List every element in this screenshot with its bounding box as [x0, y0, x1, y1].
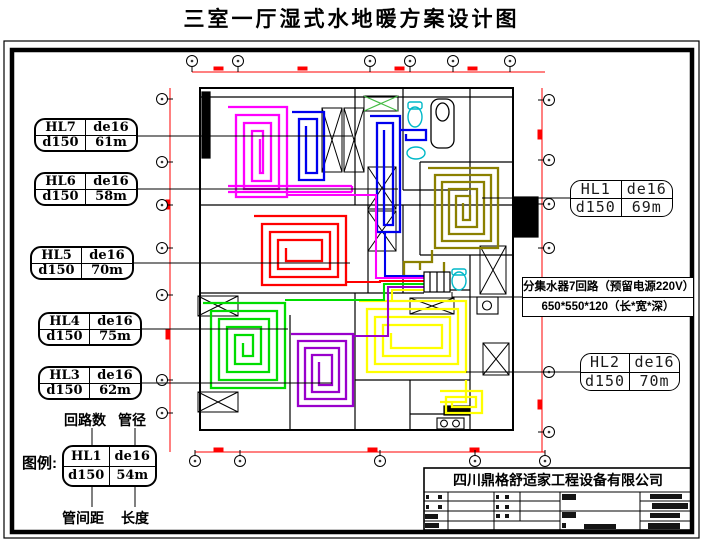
page-title: 三室一厅湿式水地暖方案设计图 [0, 3, 703, 33]
loop-HL2-length: 70m [630, 373, 679, 391]
loop-HL4-spacing: d150 [40, 330, 90, 345]
loop-HL6-spacing: d150 [36, 190, 86, 205]
loop-HL5-length: 70m [82, 264, 132, 279]
legend-label: 图例: [22, 452, 57, 473]
loop-HL1-length: 69m [622, 199, 673, 216]
loop-HL7-pipe: de16 [86, 120, 136, 136]
loop-label-HL7: HL7de16d15061m [34, 118, 138, 152]
heating-coils [203, 107, 498, 413]
axis-bubble [538, 427, 555, 438]
loop-HL3-spacing: d150 [40, 384, 90, 399]
loop-HL7-spacing: d150 [36, 136, 86, 151]
legend-sample-length: 54m [110, 467, 156, 486]
legend-sample-id: HL1 [64, 447, 110, 467]
loop-HL6-id: HL6 [36, 174, 86, 190]
legend-anno-length: 长度 [121, 508, 149, 528]
loop-HL5-id: HL5 [32, 248, 82, 264]
axis-bubble [157, 243, 174, 254]
axis-bubble [538, 243, 555, 254]
loop-HL3-length: 62m [90, 384, 140, 399]
loop-HL2-pipe: de16 [630, 354, 679, 373]
axis-bubble [538, 95, 555, 106]
axis-bubble [157, 290, 174, 301]
legend-sample-pipe: de16 [110, 447, 156, 467]
axis-bubble [157, 157, 174, 168]
axis-bubble [157, 408, 174, 419]
axis-bubble [448, 56, 459, 73]
axis-bubble [157, 94, 174, 105]
legend-anno-pipe-dia: 管径 [118, 410, 146, 430]
vent-hatch-symbol [364, 96, 398, 111]
loop-HL4-pipe: de16 [90, 314, 140, 330]
bathtub-icon [431, 99, 454, 148]
loop-HL1-id: HL1 [571, 181, 622, 199]
loop-label-HL5: HL5de16d15070m [30, 246, 134, 280]
legend-anno-loop-count: 回路数 [64, 410, 106, 430]
closet-x-symbol [368, 167, 396, 209]
loop-HL6-length: 58m [86, 190, 136, 205]
axis-bubble [157, 200, 174, 211]
loop-label-HL4: HL4de16d15075m [38, 312, 142, 346]
manifold-note-line2: 650*550*120（长*宽*深） [523, 298, 693, 317]
trunk-HL3 [353, 287, 424, 336]
loop-HL3-id: HL3 [40, 368, 90, 384]
loop-HL2-id: HL2 [581, 354, 630, 373]
coil-HL3 [291, 334, 353, 406]
loop-HL1-pipe: de16 [622, 181, 673, 199]
manifold-note-line1: 分集水器7回路（预留电源220V） [523, 278, 693, 298]
cad-drawing-page: 三室一厅湿式水地暖方案设计图 HL7de16d15061mHL6de16d150… [0, 0, 703, 541]
loop-label-HL6: HL6de16d15058m [34, 172, 138, 206]
coil-HL1 [428, 168, 498, 248]
legend-sample-box: HL1 de16 d150 54m [62, 445, 157, 487]
axis-bubble [365, 56, 376, 73]
loop-HL7-length: 61m [86, 136, 136, 151]
legend-anno-pipe-pitch: 管间距 [62, 508, 104, 528]
manifold-note: 分集水器7回路（预留电源220V） 650*550*120（长*宽*深） [522, 277, 694, 317]
loop-label-HL1: HL1de16d15069m [570, 180, 673, 217]
axis-bubble [157, 375, 174, 386]
company-name: 四川鼎格舒适家工程设备有限公司 [426, 469, 690, 491]
closet-x-symbol [198, 392, 238, 412]
axis-bubble [187, 56, 198, 73]
axis-bubble [233, 56, 244, 73]
loop-HL1-spacing: d150 [571, 199, 622, 216]
closet-x-symbol [344, 108, 364, 172]
loop-HL7-id: HL7 [36, 120, 86, 136]
loop-HL4-id: HL4 [40, 314, 90, 330]
axis-bubble [405, 56, 416, 73]
loop-HL4-length: 75m [90, 330, 140, 345]
manifold-symbol [424, 272, 450, 292]
closet-x-symbol [198, 296, 238, 316]
legend-sample-spacing: d150 [64, 467, 110, 486]
loop-HL2-spacing: d150 [581, 373, 630, 391]
axis-bubble [505, 56, 516, 73]
loop-label-HL2: HL2de16d15070m [580, 353, 680, 391]
loop-label-HL3: HL3de16d15062m [38, 366, 142, 400]
coil-HL6 [292, 112, 324, 180]
axis-bubble [538, 155, 555, 166]
loop-HL5-spacing: d150 [32, 264, 82, 279]
loop-HL3-pipe: de16 [90, 368, 140, 384]
axis-bubble [538, 199, 555, 210]
coil-HL7 [228, 107, 287, 197]
closet-x-symbol [483, 343, 509, 375]
trunk-HL5 [346, 281, 424, 282]
coil-branch-HL6 [400, 130, 426, 140]
trunk-HL2 [392, 290, 424, 301]
coil-HL5 [254, 216, 346, 285]
loop-HL6-pipe: de16 [86, 174, 136, 190]
loop-HL5-pipe: de16 [82, 248, 132, 264]
closet-x-symbol [480, 246, 506, 294]
